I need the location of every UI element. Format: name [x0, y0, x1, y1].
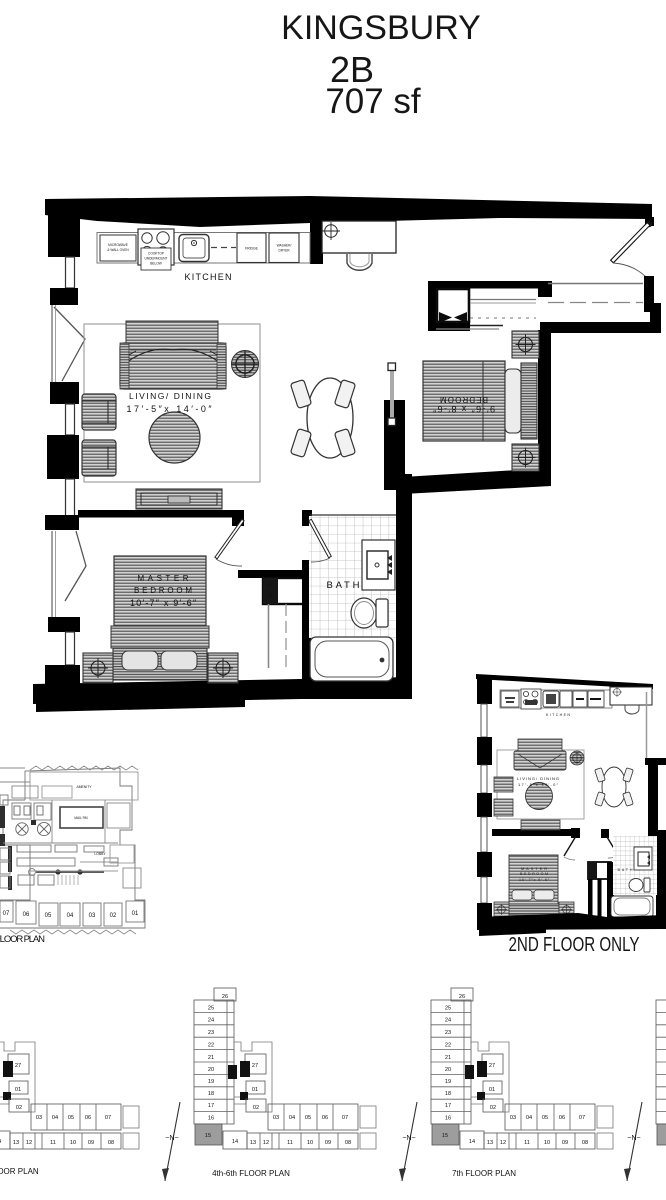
svg-text:BEDROOM: BEDROOM [440, 395, 488, 404]
svg-text:FRIDGE: FRIDGE [245, 247, 259, 251]
svg-text:MICROWAVE: MICROWAVE [108, 243, 128, 247]
svg-text:LIVING/ DINING: LIVING/ DINING [129, 391, 211, 401]
svg-text:03: 03 [89, 913, 96, 919]
svg-text:01: 01 [132, 911, 139, 917]
svg-text:KINGSBURY: KINGSBURY [281, 9, 481, 47]
svg-text:BATH: BATH [618, 868, 633, 872]
svg-text:COOKTOP: COOKTOP [148, 252, 164, 256]
svg-text:707 sf: 707 sf [325, 82, 421, 121]
svg-text:UNDERMOUNT: UNDERMOUNT [144, 257, 167, 261]
svg-text:10′-7″x 9′-6″: 10′-7″x 9′-6″ [519, 878, 550, 882]
svg-text:FLOOR PLAN: FLOOR PLAN [0, 1167, 39, 1176]
svg-text:07: 07 [3, 911, 10, 917]
svg-text:10′-7″ x 9′-6″: 10′-7″ x 9′-6″ [130, 598, 197, 608]
svg-text:WASHER/: WASHER/ [277, 244, 292, 248]
svg-text:KITCHEN: KITCHEN [185, 272, 232, 282]
svg-text:02: 02 [110, 913, 117, 919]
svg-text:F: F [268, 582, 272, 589]
svg-text:KITCHEN: KITCHEN [546, 713, 570, 717]
svg-text:4th-6th FLOOR PLAN: 4th-6th FLOOR PLAN [212, 1169, 290, 1178]
svg-text:LIVING/ DINING: LIVING/ DINING [517, 776, 559, 781]
svg-text:BATH: BATH [327, 580, 360, 591]
svg-text:05: 05 [45, 913, 52, 919]
svg-text:FLOOR PLAN: FLOOR PLAN [0, 934, 45, 945]
svg-text:04: 04 [67, 913, 74, 919]
svg-text:BELOW: BELOW [150, 262, 162, 266]
svg-text:2ND FLOOR ONLY: 2ND FLOOR ONLY [509, 934, 640, 956]
svg-text:DRYER: DRYER [278, 249, 290, 253]
svg-text:& WALL OVEN: & WALL OVEN [107, 248, 129, 252]
svg-text:MAIL RM: MAIL RM [74, 816, 88, 820]
svg-text:17′-5″x 14′-0″: 17′-5″x 14′-0″ [518, 782, 559, 787]
svg-text:06: 06 [23, 912, 30, 918]
svg-text:A: A [268, 592, 273, 599]
svg-text:7th FLOOR PLAN: 7th FLOOR PLAN [452, 1169, 516, 1178]
svg-text:AMENITY: AMENITY [76, 785, 92, 789]
svg-text:9′-6″ x 8′-6″: 9′-6″ x 8′-6″ [432, 404, 495, 414]
svg-text:LOBBY: LOBBY [94, 852, 106, 856]
